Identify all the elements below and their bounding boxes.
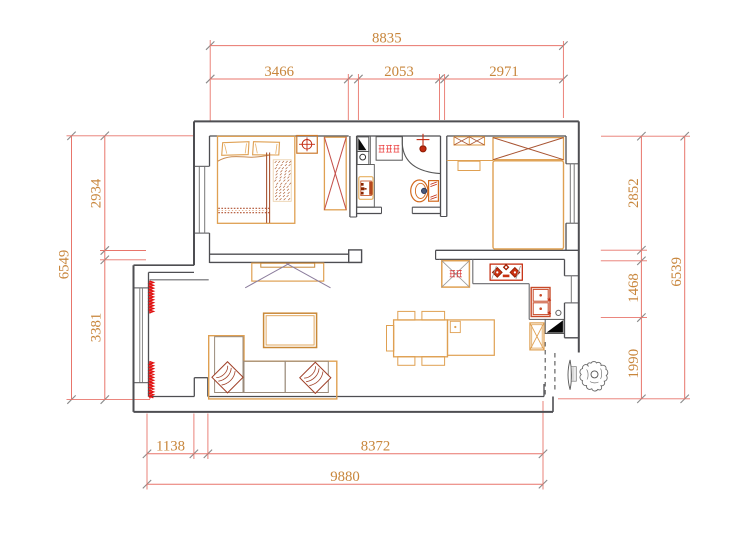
svg-text:2852: 2852	[626, 178, 642, 208]
svg-text:3466: 3466	[264, 64, 294, 80]
svg-text:2934: 2934	[89, 178, 105, 208]
svg-text:2053: 2053	[384, 64, 414, 80]
svg-text:1138: 1138	[156, 439, 185, 455]
svg-text:6549: 6549	[56, 250, 72, 280]
svg-text:3381: 3381	[89, 313, 105, 343]
svg-text:8372: 8372	[361, 439, 391, 455]
svg-text:1990: 1990	[626, 349, 642, 379]
svg-text:1468: 1468	[626, 273, 642, 303]
svg-text:8835: 8835	[372, 30, 402, 46]
svg-text:6539: 6539	[669, 257, 685, 287]
svg-text:9880: 9880	[330, 469, 360, 485]
svg-text:2971: 2971	[489, 64, 519, 80]
